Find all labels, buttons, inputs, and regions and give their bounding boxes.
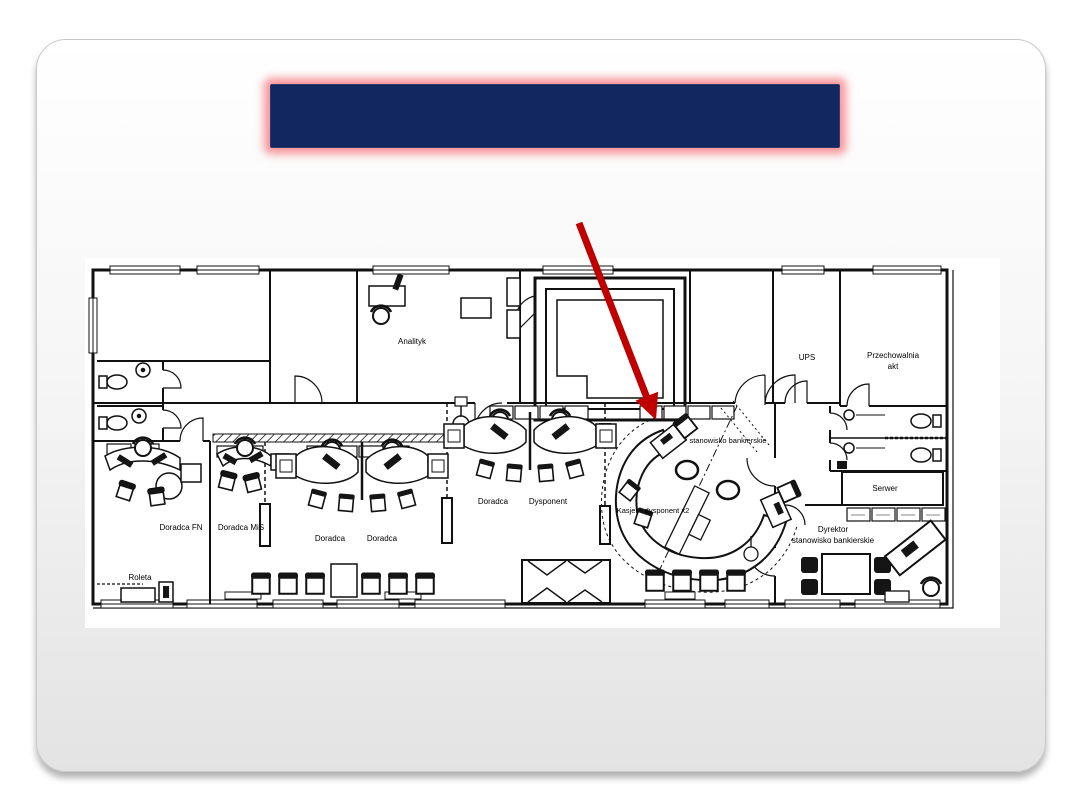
wc-right: [837, 410, 947, 469]
label-stanowisko-bankierskie: stanowisko bankierskie: [689, 436, 766, 445]
presentation-slide: Analityk UPS Przechowalnia akt Serwer Do…: [0, 0, 1080, 810]
teller-counter: [602, 401, 803, 592]
entrance-vestibule: [522, 560, 610, 603]
room-label-dyrektor-stanowisko: stanowisko bankierskie: [792, 536, 875, 545]
room-label-doradca-mis: Doradca MiS: [218, 523, 264, 532]
room-label-ups: UPS: [799, 353, 815, 362]
floor-plan-image: Analityk UPS Przechowalnia akt Serwer Do…: [85, 258, 1000, 628]
wc-left: [99, 363, 150, 430]
room-label-dysponent: Dysponent: [529, 497, 568, 506]
room-label-analityk: Analityk: [398, 337, 427, 346]
room-label-dyrektor: Dyrektor: [818, 525, 849, 534]
room-label-przechowalnia: Przechowalnia: [867, 351, 920, 360]
room-label-doradca-2: Doradca: [367, 534, 398, 543]
room-label-przechowalnia-akt: akt: [888, 362, 899, 371]
room-label-serwer: Serwer: [872, 484, 898, 493]
label-kasjer-dysponent: Kasjer - dysponent x2: [617, 506, 690, 515]
room-label-doradca-fn: Doradca FN: [159, 523, 202, 532]
analityk-room: [369, 273, 520, 338]
floor-plan-svg: Analityk UPS Przechowalnia akt Serwer Do…: [85, 258, 1000, 628]
label-roleta: Roleta: [128, 573, 152, 582]
vault-room: [535, 278, 685, 420]
title-bar: [270, 84, 840, 148]
room-label-doradca-3: Doradca: [478, 497, 509, 506]
room-label-doradca-1: Doradca: [315, 534, 346, 543]
workstation-cluster-doradca: [276, 440, 448, 512]
